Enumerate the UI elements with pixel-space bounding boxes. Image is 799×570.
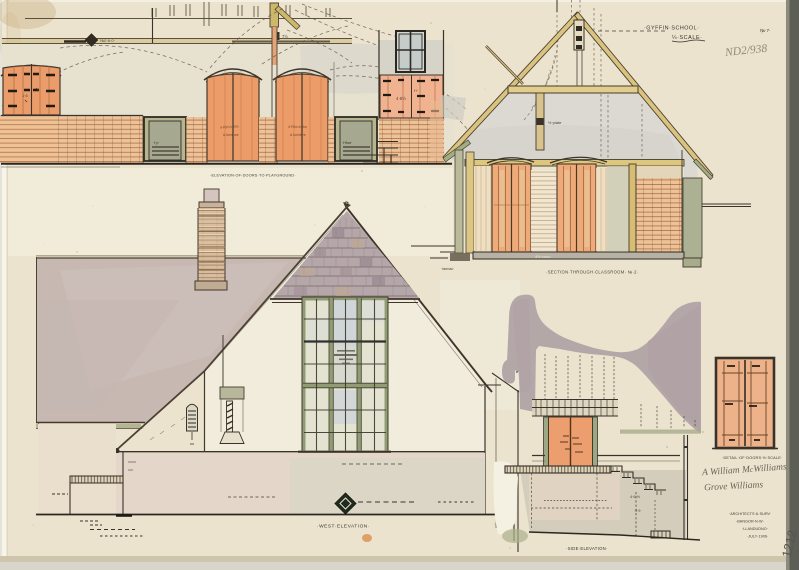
svg-text:·ELEVATION·OF·DOORS·TO·PLAYGRO: ·ELEVATION·OF·DOORS·TO·PLAYGROUND· [210, 174, 296, 178]
svg-text:4½·conc·: 4½·conc· [535, 254, 552, 259]
svg-text:·GYFFIN·SCHOOL·: ·GYFFIN·SCHOOL· [644, 26, 699, 32]
svg-text:4·6·½: 4·6·½ [630, 495, 641, 499]
svg-text:& furniture: & furniture [223, 133, 239, 137]
svg-text:·BANGOR·N·W·: ·BANGOR·N·W· [736, 520, 764, 524]
svg-text:·2·9·: ·2·9· [634, 509, 642, 513]
svg-text:·WEST·ELEVATION·: ·WEST·ELEVATION· [317, 524, 370, 530]
svg-text:½·plate: ½·plate [548, 120, 562, 125]
svg-text:4·8½: 4·8½ [396, 96, 406, 101]
svg-text:·LLANDUDNO·: ·LLANDUDNO· [742, 527, 768, 531]
svg-text:·SIDE·ELEVATION·: ·SIDE·ELEVATION· [566, 546, 608, 551]
svg-text:·JULY·1906·: ·JULY·1906· [747, 535, 768, 539]
svg-text:·tarmac·: ·tarmac· [441, 267, 454, 271]
svg-text:·SECTION·THROUGH·CLASSROOM· №·: ·SECTION·THROUGH·CLASSROOM· №·2· [546, 270, 639, 275]
svg-text:№·7·: №·7· [760, 28, 771, 33]
svg-text:1·6: 1·6 [22, 93, 29, 98]
svg-text:& furniture: & furniture [290, 133, 306, 137]
svg-text:·f·p·: ·f·p· [153, 141, 160, 145]
svg-text:·f·flue·: ·f·flue· [342, 141, 352, 145]
svg-text:·ARCHITECTS·&·SURV·: ·ARCHITECTS·&·SURV· [729, 512, 771, 516]
svg-text:7½: 7½ [282, 34, 288, 39]
svg-text:4·Rim locks: 4·Rim locks [288, 125, 307, 129]
svg-text:·DETAIL·OF·DOORS·½·SCALE·: ·DETAIL·OF·DOORS·½·SCALE· [722, 456, 782, 460]
svg-text:№2·6·0·: №2·6·0· [100, 38, 115, 43]
